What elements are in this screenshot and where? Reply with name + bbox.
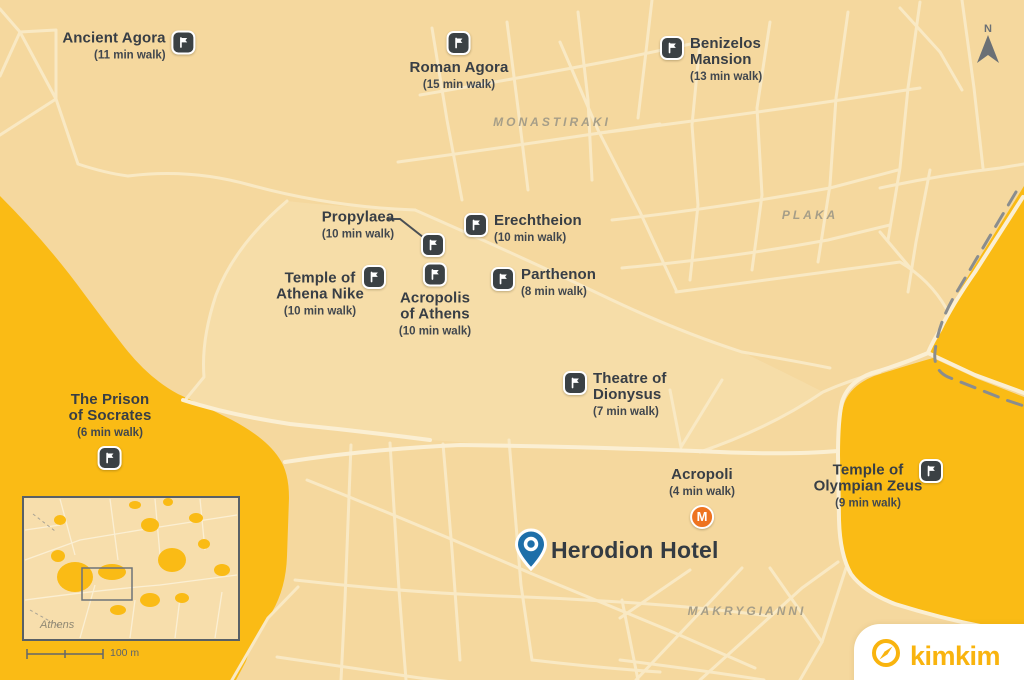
compass-north-label: N: [984, 23, 992, 35]
flag-marker-icon[interactable]: [447, 31, 471, 55]
inset-map: [23, 497, 239, 659]
poi-acropolis-of-athens[interactable]: Acropolis of Athens (10 min walk): [399, 263, 471, 340]
poi-name: Acropolis of Athens: [400, 291, 470, 323]
area-label-plaka: PLAKA: [782, 208, 838, 222]
flag-marker-icon[interactable]: [98, 446, 122, 470]
poi-walk-time: (15 min walk): [423, 77, 495, 93]
poi-name: Roman Agora: [410, 60, 509, 76]
poi-temple-of-olympian-zeus[interactable]: Temple of Olympian Zeus (9 min walk): [814, 463, 923, 512]
kimkim-wordmark: kimkim: [910, 641, 1000, 671]
flag-marker-icon-athena-nike[interactable]: [362, 265, 386, 289]
metro-walk-time: (4 min walk): [669, 484, 735, 500]
flag-marker-icon[interactable]: [172, 31, 196, 55]
metro-icon[interactable]: M: [690, 505, 714, 529]
poi-benizelos-mansion[interactable]: Benizelos Mansion (13 min walk): [660, 36, 762, 85]
poi-acropoli-metro-station[interactable]: Acropoli (4 min walk) M: [669, 467, 735, 529]
inset-city-label: Athens: [40, 619, 74, 631]
poi-ancient-agora[interactable]: Ancient Agora (11 min walk): [62, 31, 195, 64]
poi-walk-time: (9 min walk): [835, 496, 901, 512]
poi-name: The Prison of Socrates: [69, 392, 152, 424]
flag-marker-icon[interactable]: [491, 267, 515, 291]
poi-name: Ancient Agora: [62, 31, 165, 47]
poi-name: Parthenon: [521, 267, 596, 283]
poi-name: Propylaea: [322, 210, 395, 226]
poi-prison-of-socrates[interactable]: The Prison of Socrates (6 min walk): [69, 392, 152, 470]
poi-walk-time: (6 min walk): [77, 425, 143, 441]
poi-roman-agora[interactable]: Roman Agora (15 min walk): [410, 31, 509, 93]
hotel-name-label: Herodion Hotel: [551, 537, 719, 564]
poi-walk-time: (10 min walk): [284, 304, 356, 320]
flag-marker-icon-propylaea[interactable]: [421, 233, 445, 257]
poi-walk-time: (11 min walk): [94, 48, 166, 64]
poi-name: Theatre of Dionysus: [593, 371, 667, 403]
poi-propylaea[interactable]: Propylaea (10 min walk): [322, 210, 395, 243]
scale-bar-label: 100 m: [110, 647, 139, 659]
map-canvas: [0, 0, 1024, 680]
kimkim-compass-icon: [870, 637, 902, 674]
athens-walking-map: MONASTIRAKI PLAKA MAKRYGIANNI Ancient Ag…: [0, 0, 1024, 680]
poi-walk-time: (10 min walk): [399, 324, 471, 340]
poi-erechtheion[interactable]: Erechtheion (10 min walk): [464, 213, 582, 246]
poi-walk-time: (10 min walk): [322, 227, 394, 243]
poi-walk-time: (7 min walk): [593, 404, 659, 420]
poi-name: Temple of Olympian Zeus: [814, 463, 923, 495]
flag-marker-icon[interactable]: [563, 371, 587, 395]
flag-marker-icon[interactable]: [464, 213, 488, 237]
flag-marker-icon-olympian-zeus[interactable]: [919, 459, 943, 483]
poi-name: Temple of Athena Nike: [276, 271, 364, 303]
poi-temple-of-athena-nike[interactable]: Temple of Athena Nike (10 min walk): [276, 271, 364, 320]
metro-station-name: Acropoli: [671, 467, 733, 483]
hotel-pin-icon[interactable]: [513, 528, 549, 577]
poi-walk-time: (8 min walk): [521, 284, 587, 300]
poi-parthenon[interactable]: Parthenon (8 min walk): [491, 267, 596, 300]
flag-marker-icon[interactable]: [423, 263, 447, 287]
area-label-monastiraki: MONASTIRAKI: [493, 115, 611, 129]
kimkim-logo-card[interactable]: kimkim: [854, 624, 1024, 680]
area-label-makrygianni: MAKRYGIANNI: [688, 604, 807, 618]
poi-walk-time: (13 min walk): [690, 69, 762, 85]
poi-name: Benizelos Mansion: [690, 36, 761, 68]
poi-walk-time: (10 min walk): [494, 230, 566, 246]
poi-name: Erechtheion: [494, 213, 582, 229]
poi-theatre-of-dionysus[interactable]: Theatre of Dionysus (7 min walk): [563, 371, 667, 420]
flag-marker-icon[interactable]: [660, 36, 684, 60]
